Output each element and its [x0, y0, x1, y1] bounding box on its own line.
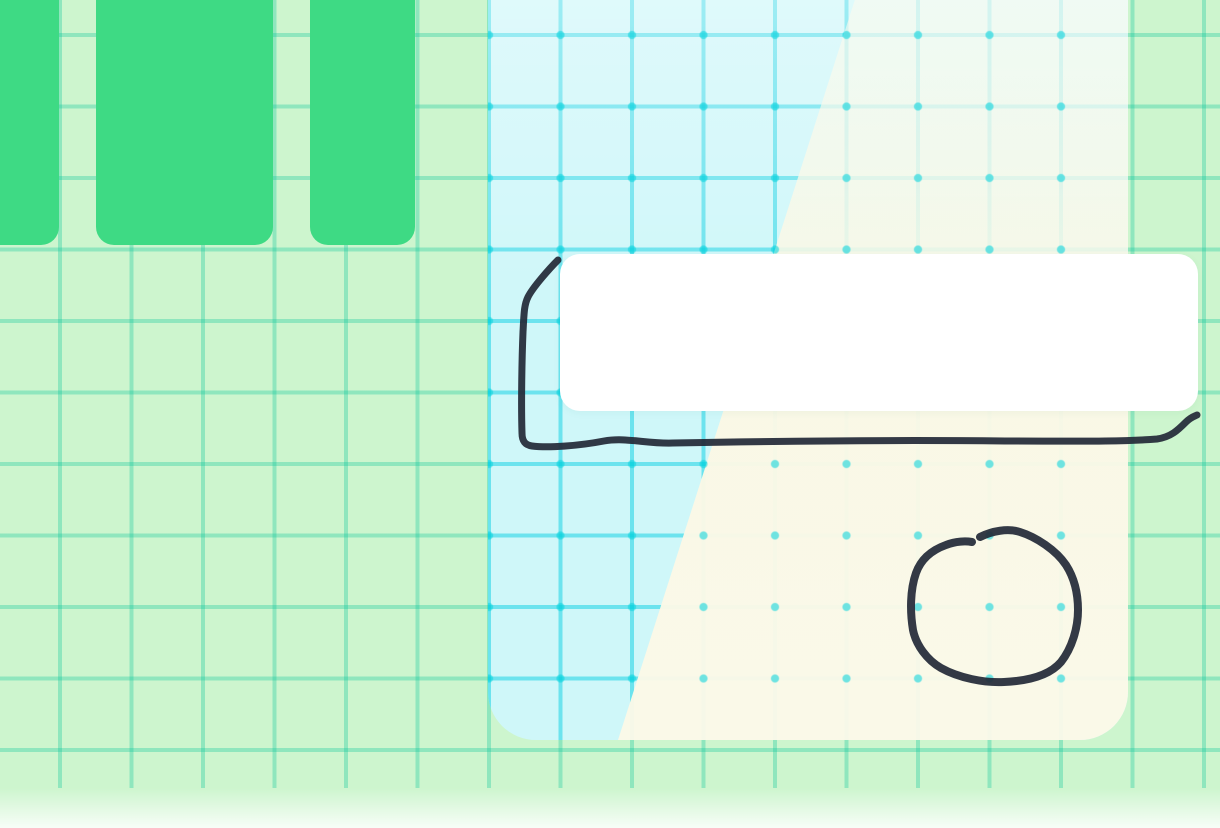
- ink-layer: [0, 0, 1220, 828]
- ink-frame-stroke[interactable]: [522, 260, 1197, 447]
- ink-circle-stroke[interactable]: [911, 530, 1078, 682]
- whiteboard-canvas[interactable]: [0, 0, 1220, 828]
